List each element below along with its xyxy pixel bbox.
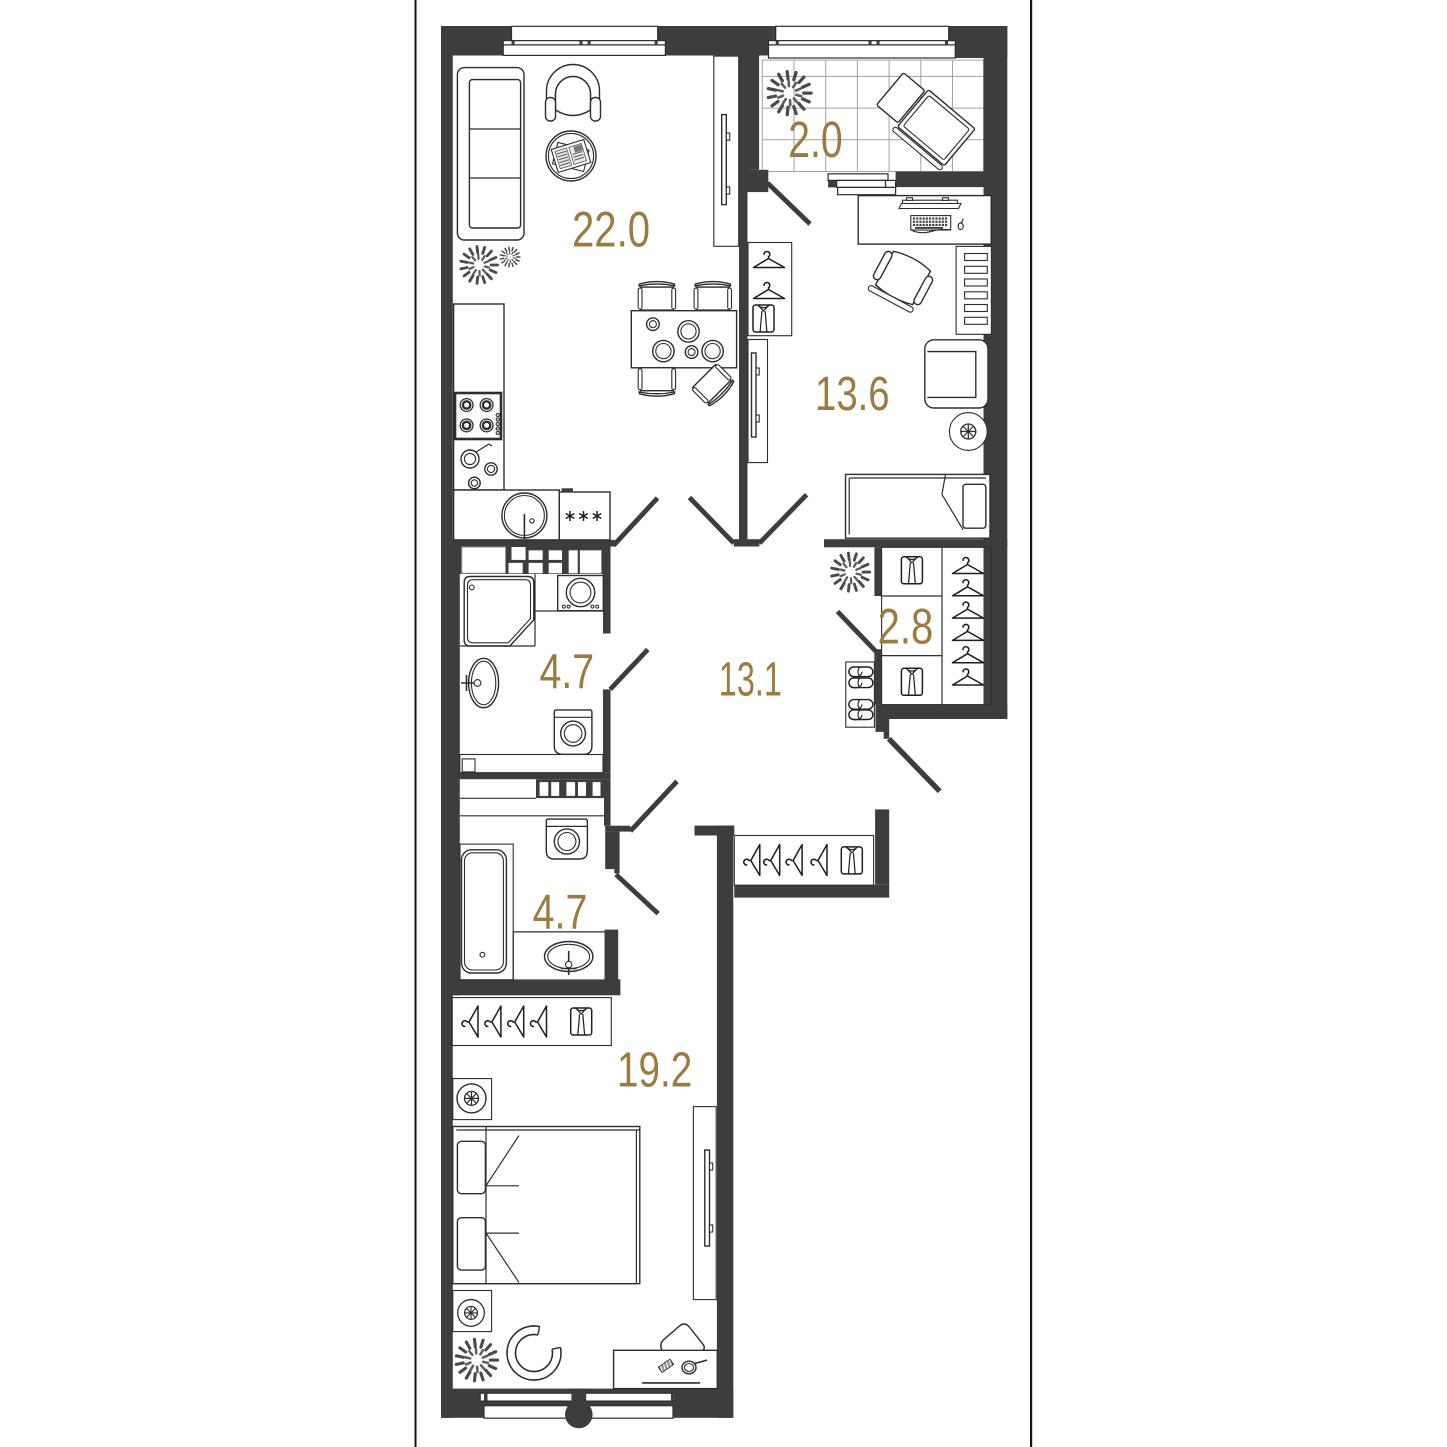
svg-text:2.0: 2.0	[788, 111, 842, 168]
svg-text:4.7: 4.7	[540, 645, 595, 699]
svg-text:2.8: 2.8	[878, 599, 934, 655]
svg-text:19.2: 19.2	[617, 1044, 692, 1098]
svg-text:13.1: 13.1	[719, 653, 782, 706]
svg-text:13.6: 13.6	[815, 368, 890, 421]
svg-text:4.7: 4.7	[533, 886, 588, 940]
svg-text:22.0: 22.0	[572, 201, 650, 257]
